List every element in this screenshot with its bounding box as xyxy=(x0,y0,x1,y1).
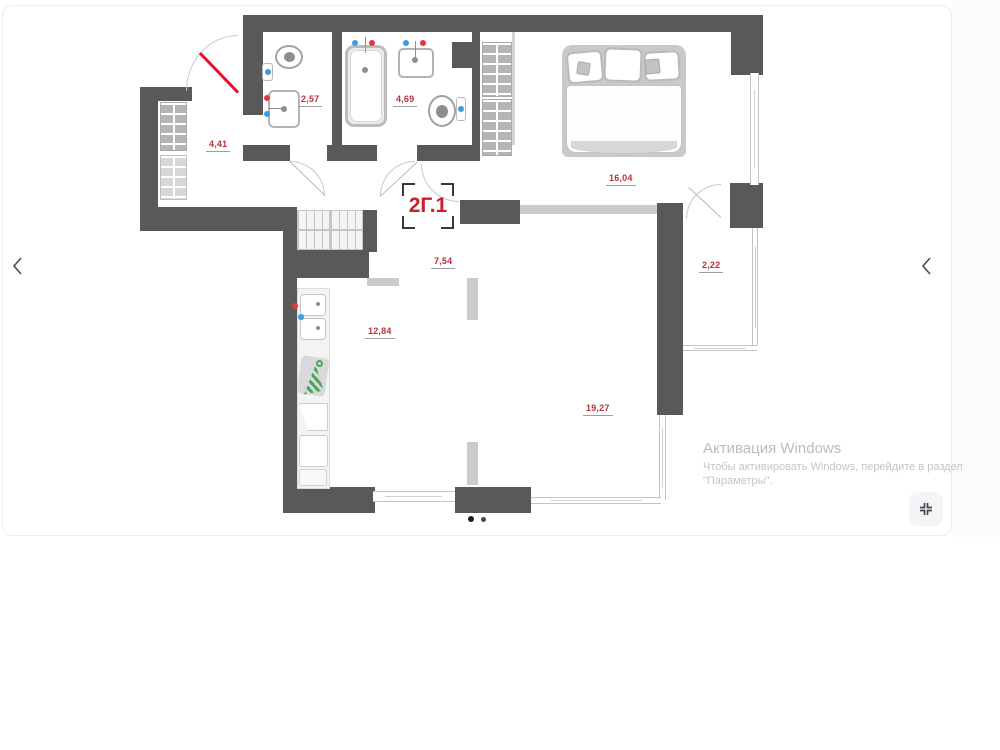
room-area-label: 19,27 xyxy=(583,403,613,416)
chevron-left-icon xyxy=(10,254,24,278)
cold-water-dot xyxy=(403,40,409,46)
wall-segment xyxy=(283,487,375,513)
collapse-icon xyxy=(918,501,934,517)
wall-segment xyxy=(332,32,342,145)
wardrobe xyxy=(160,102,187,151)
wall-segment xyxy=(455,487,531,513)
window-living-bottom xyxy=(531,497,661,504)
wall-segment xyxy=(452,42,473,68)
kitchen-sink-basin xyxy=(300,294,326,316)
collapse-fullscreen-button[interactable] xyxy=(909,492,943,526)
room-area-label: 2,22 xyxy=(699,260,723,273)
pillow xyxy=(603,47,642,82)
plan-code: 2Г.1 xyxy=(402,194,454,218)
floor-plan: 4,41 2,57 4,69 16,04 7,54 2,22 12,84 19,… xyxy=(140,15,765,520)
wardrobe xyxy=(160,155,187,200)
plan-code-badge: 2Г.1 xyxy=(402,183,454,229)
hot-water-dot xyxy=(369,40,375,46)
partition-stub xyxy=(467,442,478,485)
carousel-dot-active[interactable] xyxy=(468,516,474,522)
watermark-line1: Чтобы активировать Windows, перейдите в … xyxy=(703,461,963,475)
page: 4,41 2,57 4,69 16,04 7,54 2,22 12,84 19,… xyxy=(0,0,1000,750)
wall-segment xyxy=(283,248,369,278)
partition-stub xyxy=(467,278,478,320)
window-balcony-bottom xyxy=(683,345,757,351)
faucet-line xyxy=(268,108,282,109)
cushion xyxy=(576,61,591,76)
wall-segment xyxy=(472,32,480,145)
toilet-bowl xyxy=(284,52,295,62)
wall-segment xyxy=(417,145,480,161)
watermark-line2: "Параметры". xyxy=(703,475,963,489)
faucet-dot xyxy=(316,326,320,330)
toilet-bowl xyxy=(436,105,448,118)
cold-water-dot xyxy=(265,69,271,75)
wall-segment xyxy=(730,183,763,228)
cold-water-dot xyxy=(298,314,304,320)
window-balcony-right xyxy=(752,228,758,345)
room-area-label: 7,54 xyxy=(431,256,455,269)
wall-segment xyxy=(243,15,763,32)
windows-activation-watermark: Активация Windows Чтобы активировать Win… xyxy=(703,440,963,489)
faucet-dot xyxy=(281,106,287,112)
faucet-line xyxy=(415,41,416,57)
kitchen-sink-basin xyxy=(300,318,326,340)
prev-slide-button[interactable] xyxy=(4,251,30,281)
wall-segment xyxy=(140,87,158,209)
wall-segment xyxy=(140,207,285,231)
room-area-label: 16,04 xyxy=(606,173,636,186)
room-area-label: 4,41 xyxy=(206,139,230,152)
chevron-left-icon xyxy=(919,254,933,278)
kitchen-unit xyxy=(299,435,328,467)
cold-water-dot xyxy=(264,111,270,117)
window-bedroom xyxy=(750,73,759,185)
hot-water-dot xyxy=(420,40,426,46)
watermark-title: Активация Windows xyxy=(703,440,963,457)
closet-divider-line xyxy=(512,32,515,145)
wardrobe xyxy=(297,210,330,250)
wall-segment xyxy=(657,203,683,415)
plant-sprig-icon xyxy=(316,360,323,367)
room-area-label: 4,69 xyxy=(393,94,417,107)
wall-segment xyxy=(460,200,520,224)
cushion xyxy=(644,58,660,74)
drain-dot xyxy=(362,67,368,73)
window-kitchen xyxy=(373,491,455,502)
next-slide-button[interactable] xyxy=(913,251,939,281)
partition-stub xyxy=(367,278,399,286)
faucet-line xyxy=(365,37,366,53)
hot-water-dot xyxy=(264,95,270,101)
wall-segment xyxy=(363,210,377,252)
hot-water-dot xyxy=(292,303,298,309)
faucet-dot xyxy=(412,57,418,63)
faucet-dot xyxy=(316,302,320,306)
room-area-label: 12,84 xyxy=(365,326,395,339)
bathtub-inner xyxy=(350,50,382,122)
wardrobe xyxy=(482,42,512,97)
wall-segment xyxy=(243,145,290,161)
bed-foot xyxy=(571,141,677,153)
kitchen-unit xyxy=(299,469,327,486)
cold-water-dot xyxy=(352,40,358,46)
carousel-dot[interactable] xyxy=(481,517,486,522)
wall-segment xyxy=(731,15,763,75)
wall-segment xyxy=(243,29,263,115)
glass-partition xyxy=(520,205,657,214)
wardrobe xyxy=(330,210,363,250)
wall-segment xyxy=(327,145,377,161)
window-living-right xyxy=(659,415,666,500)
sink xyxy=(398,48,434,78)
wardrobe xyxy=(482,99,512,156)
cold-water-dot xyxy=(458,106,464,112)
room-area-label: 2,57 xyxy=(298,94,322,107)
